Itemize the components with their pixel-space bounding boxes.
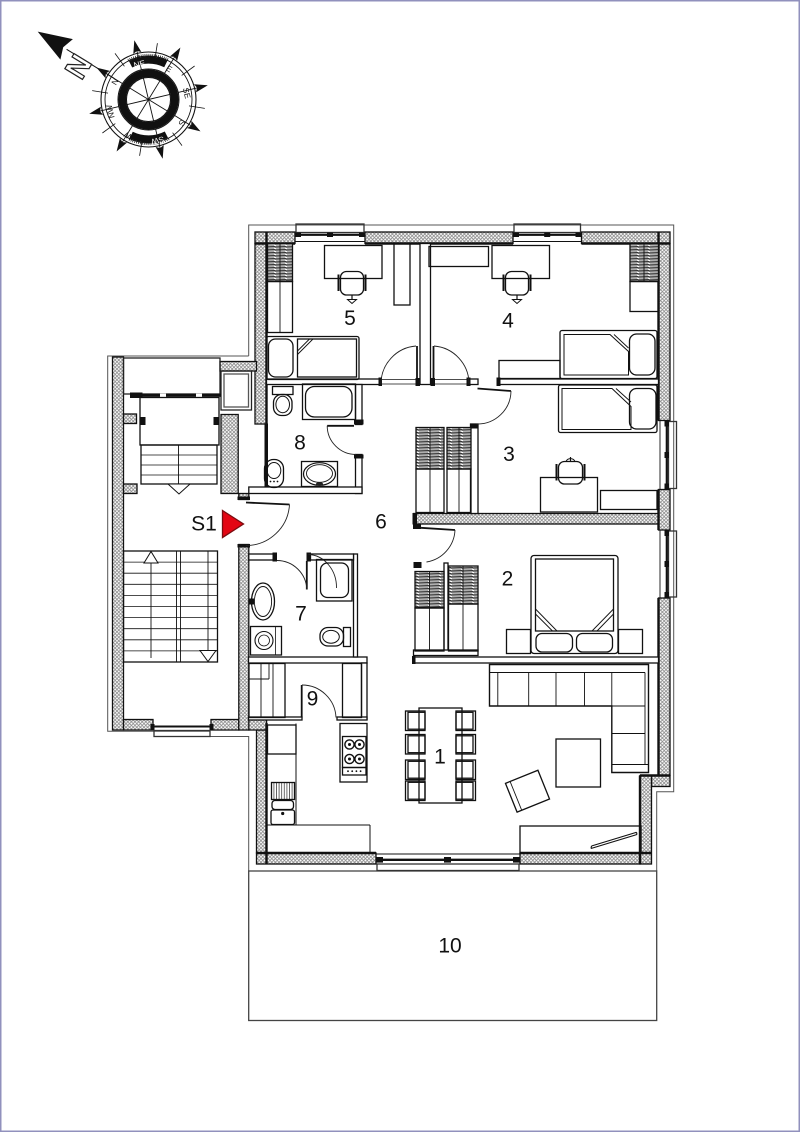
svg-text:S: S xyxy=(176,118,187,128)
svg-text:NW: NW xyxy=(105,103,117,119)
svg-text:2: 2 xyxy=(502,568,514,591)
svg-text:5: 5 xyxy=(344,307,356,330)
svg-text:6: 6 xyxy=(375,511,387,534)
svg-text:8: 8 xyxy=(294,432,306,455)
svg-text:N: N xyxy=(110,77,121,87)
svg-text:3: 3 xyxy=(503,443,515,466)
svg-text:SE: SE xyxy=(181,87,192,100)
svg-text:4: 4 xyxy=(502,310,514,333)
svg-text:E: E xyxy=(164,64,174,75)
svg-text:10: 10 xyxy=(438,935,461,958)
svg-text:9: 9 xyxy=(307,688,319,711)
svg-text:1: 1 xyxy=(434,746,446,769)
svg-text:7: 7 xyxy=(295,603,307,626)
svg-text:S1: S1 xyxy=(191,513,217,536)
svg-text:N: N xyxy=(59,49,98,85)
